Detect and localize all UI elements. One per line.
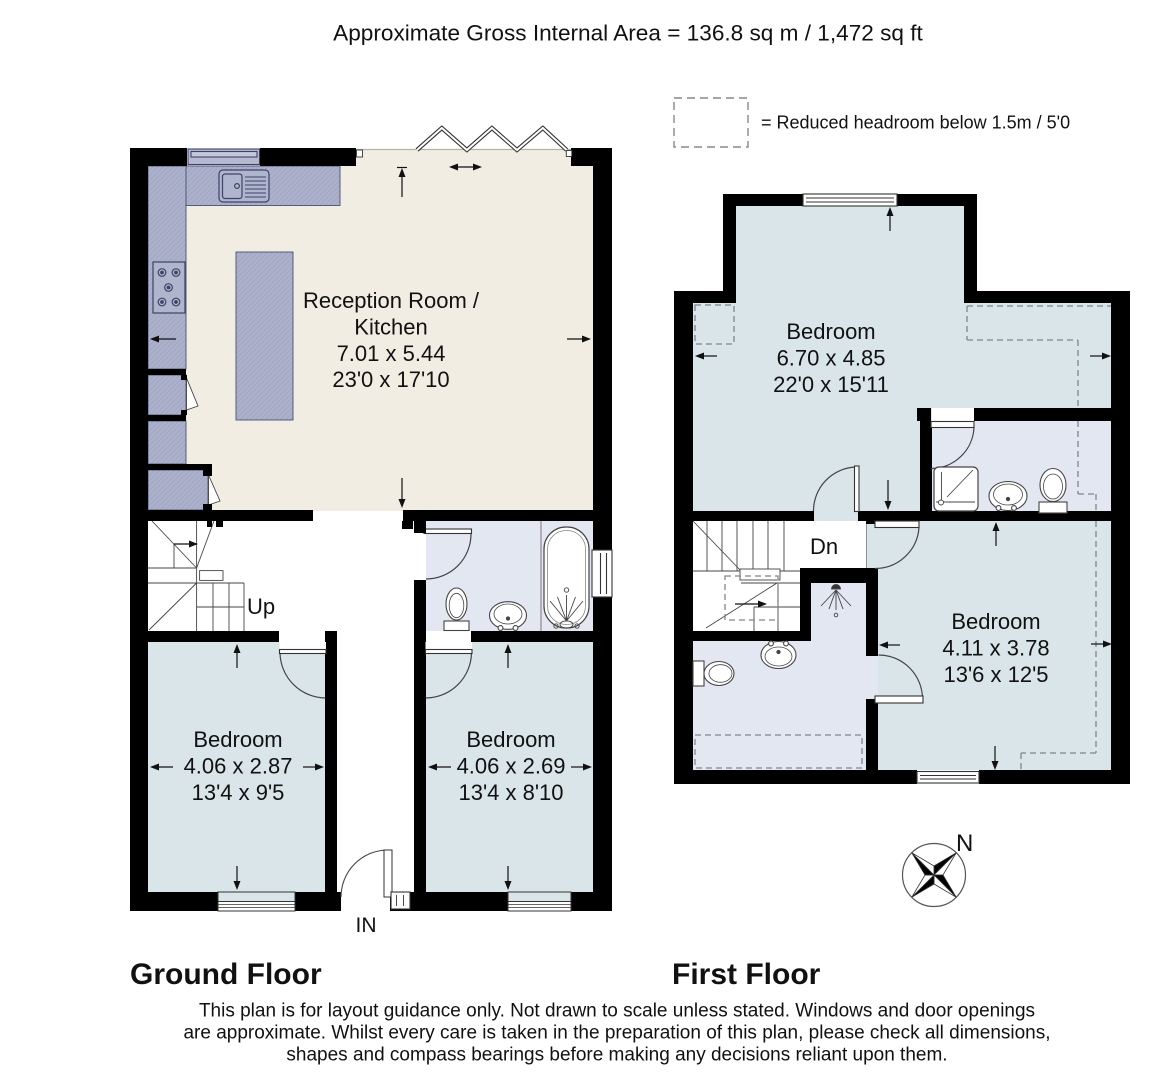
- svg-text:IN: IN: [356, 914, 377, 937]
- svg-text:Bedroom: Bedroom: [951, 609, 1040, 634]
- svg-text:4.06 x 2.69: 4.06 x 2.69: [457, 754, 566, 779]
- svg-text:22'0 x 15'11: 22'0 x 15'11: [773, 372, 889, 397]
- svg-text:23'0 x 17'10: 23'0 x 17'10: [332, 367, 449, 392]
- svg-text:Kitchen: Kitchen: [354, 315, 427, 340]
- svg-text:Bedroom: Bedroom: [786, 319, 875, 344]
- svg-text:shapes and compass bearings be: shapes and compass bearings before makin…: [286, 1045, 947, 1066]
- svg-text:6.70 x 4.85: 6.70 x 4.85: [777, 346, 886, 371]
- svg-text:Bedroom: Bedroom: [193, 727, 282, 752]
- svg-text:Up: Up: [247, 594, 275, 619]
- svg-text:Bedroom: Bedroom: [466, 727, 555, 752]
- svg-text:are approximate. Whilst every: are approximate. Whilst every care is ta…: [183, 1023, 1050, 1044]
- svg-text:This plan is for layout guidan: This plan is for layout guidance only. N…: [199, 1001, 1035, 1022]
- svg-text:First Floor: First Floor: [672, 958, 821, 991]
- svg-text:Reception Room /: Reception Room /: [303, 288, 480, 313]
- svg-text:13'4 x 9'5: 13'4 x 9'5: [192, 780, 285, 805]
- svg-text:4.06 x 2.87: 4.06 x 2.87: [184, 754, 293, 779]
- svg-text:13'6 x 12'5: 13'6 x 12'5: [943, 662, 1048, 687]
- svg-text:= Reduced headroom below 1.5m: = Reduced headroom below 1.5m / 5'0: [761, 113, 1070, 133]
- svg-text:7.01 x 5.44: 7.01 x 5.44: [337, 341, 446, 366]
- svg-text:N: N: [956, 830, 973, 857]
- svg-text:Approximate Gross Internal Are: Approximate Gross Internal Area = 136.8 …: [333, 21, 923, 46]
- svg-text:Dn: Dn: [810, 534, 838, 559]
- svg-text:4.11 x 3.78: 4.11 x 3.78: [942, 636, 1049, 661]
- svg-text:Ground Floor: Ground Floor: [130, 958, 322, 991]
- svg-text:13'4 x 8'10: 13'4 x 8'10: [458, 780, 563, 805]
